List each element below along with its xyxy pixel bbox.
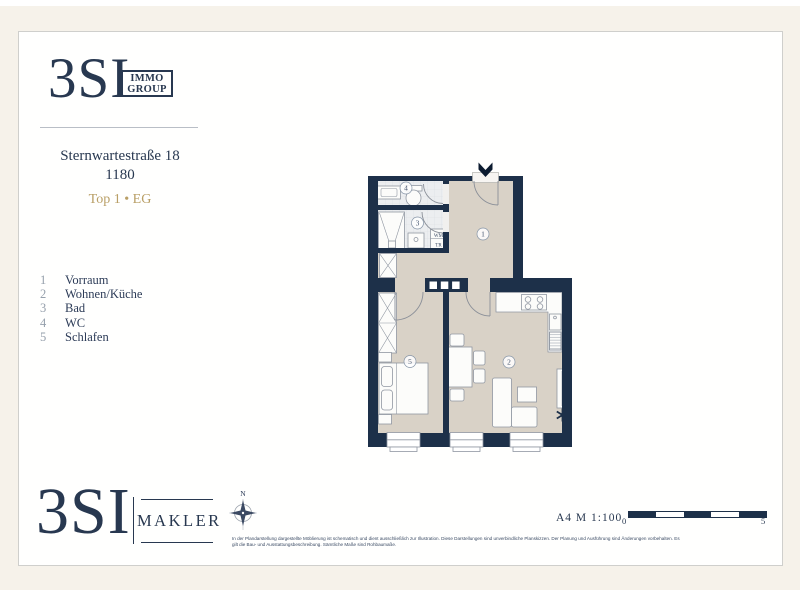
window: [450, 433, 483, 452]
room-legend: 1Vorraum 2Wohnen/Küche 3Bad 4WC 5Schlafe…: [40, 273, 142, 344]
nightstand: [379, 353, 392, 363]
scale-bar-end-label: 5: [761, 516, 765, 526]
chair: [450, 389, 464, 401]
disclaimer-text: In der Plandarstellung dargestellte Möbl…: [232, 536, 662, 548]
legend-label: Schlafen: [65, 330, 109, 344]
sofa-chaise: [512, 407, 538, 427]
shower: [379, 212, 405, 249]
bath-door-opening: [443, 212, 449, 232]
chair: [474, 351, 486, 365]
dryer-label: TR: [435, 243, 442, 248]
bath-washbasin: [408, 233, 424, 248]
wc-washbasin: [378, 186, 401, 199]
nightstand: [379, 415, 392, 425]
room-badge-wohnen: 2: [503, 356, 515, 368]
legend-row-1: 1Vorraum: [40, 273, 142, 287]
room-badge-bad: 3: [412, 217, 424, 229]
room-badge-schlafen: 5: [404, 356, 416, 368]
window: [510, 433, 543, 452]
footer-logo-divider: [133, 497, 134, 544]
washer-label: WM: [434, 234, 444, 239]
floorplan-drawing: WM TR: [360, 155, 580, 457]
chair: [450, 334, 464, 346]
scale-bar-start-label: 0: [622, 516, 626, 526]
legend-label: Bad: [65, 301, 85, 315]
floorplan-sheet-root: 3SI IMMO GROUP Sternwartestraße 18 1180 …: [0, 0, 800, 600]
makler-rule-top: [141, 499, 213, 500]
legend-row-2: 2Wohnen/Küche: [40, 287, 142, 301]
glass-block-wall: [430, 282, 460, 290]
header-divider: [40, 127, 198, 128]
compass-icon: N: [225, 486, 265, 534]
bedroom-wardrobe: [379, 293, 397, 353]
legend-label: Vorraum: [65, 273, 109, 287]
legend-num: 5: [40, 330, 65, 344]
stove: [522, 295, 547, 311]
disclaimer-line-2: gilt die Bau- und Ausstattungsbeschreibu…: [232, 542, 662, 548]
disclaimer-line-1: In der Plandarstellung dargestellte Möbl…: [232, 536, 662, 542]
legend-num: 1: [40, 273, 65, 287]
windows: [387, 433, 543, 452]
svg-text:2: 2: [507, 358, 511, 367]
legend-num: 3: [40, 301, 65, 315]
legend-num: 4: [40, 316, 65, 330]
scale-bar-segment: [711, 512, 738, 517]
address-block: Sternwartestraße 18 1180: [20, 147, 220, 185]
legend-row-5: 5Schlafen: [40, 330, 142, 344]
address-zip: 1180: [20, 166, 220, 185]
sofa: [493, 378, 512, 427]
logo-group: GROUP: [127, 84, 166, 95]
legend-row-4: 4WC: [40, 316, 142, 330]
coffee-table: [518, 387, 537, 402]
dishwasher: [550, 332, 562, 350]
legend-num: 2: [40, 287, 65, 301]
chair: [474, 369, 486, 383]
address-street: Sternwartestraße 18: [20, 147, 220, 166]
legend-row-3: 3Bad: [40, 301, 142, 315]
unit-label: Top 1 • EG: [20, 192, 220, 208]
sheet-format-scale: A4 M 1:100: [556, 512, 622, 524]
logo-immo-group-box: IMMO GROUP: [121, 70, 173, 97]
logo-immo: IMMO: [130, 73, 163, 84]
svg-text:5: 5: [408, 357, 412, 366]
scale-bar-segment: [684, 512, 711, 517]
wc-door-opening: [443, 184, 449, 204]
footer-logo-makler: MAKLER: [137, 511, 217, 531]
svg-text:1: 1: [481, 230, 485, 239]
legend-label: Wohnen/Küche: [65, 287, 142, 301]
room-badge-vorraum: 1: [477, 228, 489, 240]
bed: [379, 363, 428, 414]
scale-bar-segment: [656, 512, 683, 517]
scale-bar: [628, 511, 767, 518]
svg-text:4: 4: [404, 184, 408, 193]
makler-rule-bottom: [141, 542, 213, 543]
compass-north-label: N: [240, 489, 246, 498]
window: [387, 433, 420, 452]
room-badge-wc: 4: [400, 182, 412, 194]
scale-bar-segment: [629, 512, 656, 517]
kitchen-sink: [550, 314, 562, 330]
logo-3si: 3SI: [48, 50, 130, 107]
dining-table: [448, 347, 472, 387]
footer-logo-3si: 3SI: [36, 479, 131, 545]
hall-wardrobe: [380, 254, 397, 278]
svg-text:3: 3: [416, 219, 420, 228]
legend-label: WC: [65, 316, 85, 330]
